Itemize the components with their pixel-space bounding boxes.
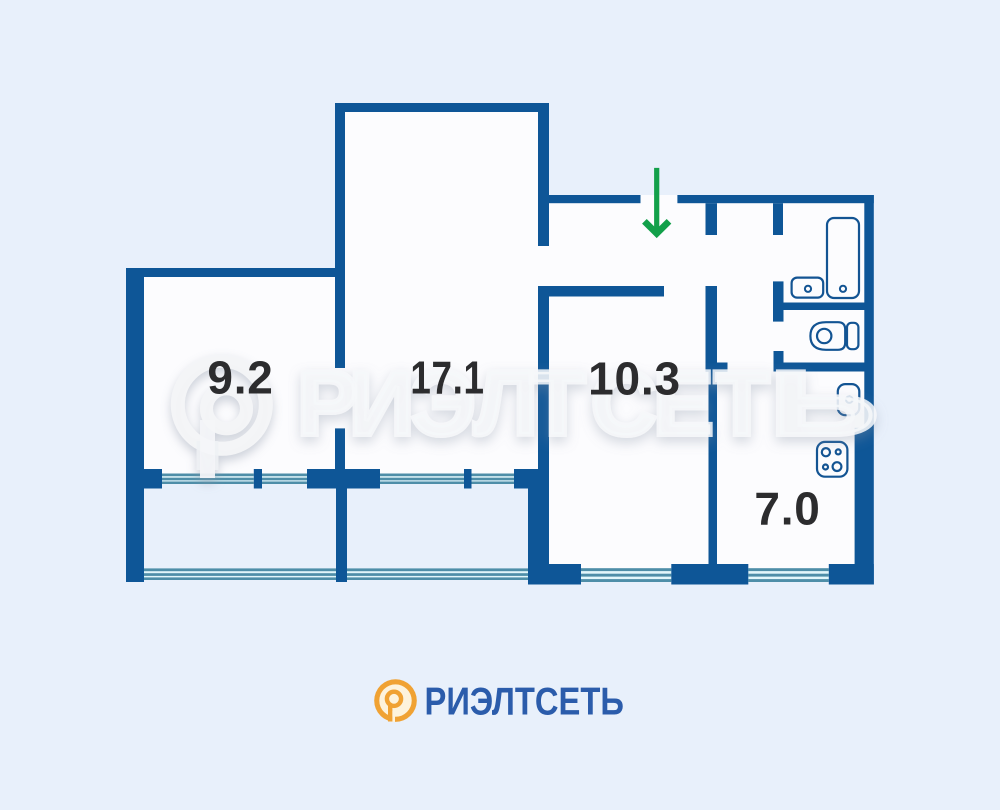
svg-text:7.0: 7.0 <box>754 482 820 534</box>
svg-text:9.2: 9.2 <box>207 351 273 403</box>
svg-text:РИЭЛТСЕТЬ: РИЭЛТСЕТЬ <box>425 679 624 723</box>
svg-text:РИЭЛТСЕТ: РИЭЛТСЕТ <box>297 354 770 455</box>
svg-text:Ь: Ь <box>770 354 878 455</box>
svg-text:17.1: 17.1 <box>410 351 484 403</box>
svg-text:10.3: 10.3 <box>588 352 681 404</box>
